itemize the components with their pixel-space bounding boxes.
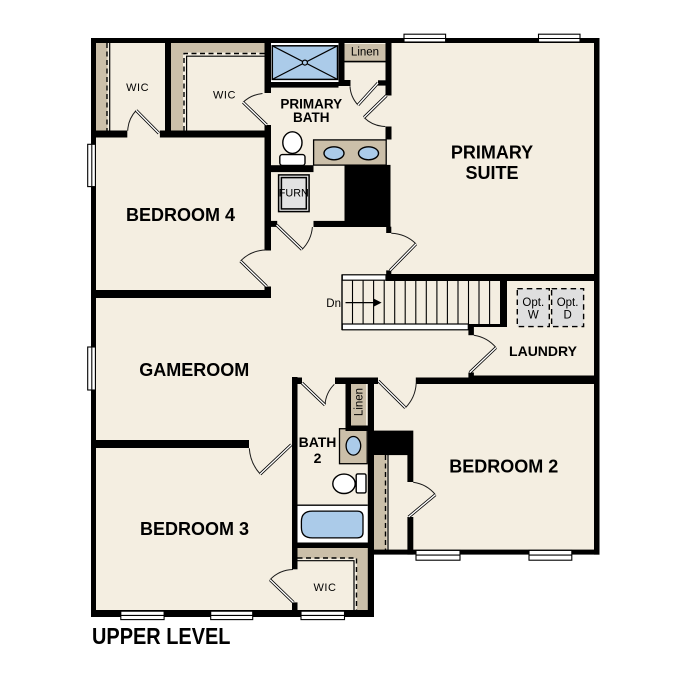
- svg-text:PRIMARY: PRIMARY: [280, 96, 342, 111]
- svg-text:GAMEROOM: GAMEROOM: [139, 360, 249, 380]
- svg-text:W: W: [528, 310, 539, 322]
- svg-text:UPPER LEVEL: UPPER LEVEL: [92, 623, 231, 649]
- svg-text:PRIMARY: PRIMARY: [451, 142, 533, 162]
- svg-text:Opt.: Opt.: [522, 297, 544, 309]
- svg-text:BEDROOM 3: BEDROOM 3: [140, 519, 249, 539]
- svg-text:Linen: Linen: [351, 47, 379, 59]
- svg-text:BEDROOM 2: BEDROOM 2: [449, 457, 558, 477]
- svg-text:WIC: WIC: [213, 89, 236, 101]
- svg-text:2: 2: [314, 450, 322, 466]
- svg-text:FURN: FURN: [279, 187, 309, 199]
- svg-text:BATH: BATH: [299, 434, 337, 450]
- svg-text:SUITE: SUITE: [465, 163, 518, 183]
- svg-text:BEDROOM 4: BEDROOM 4: [126, 205, 235, 225]
- svg-text:WIC: WIC: [314, 582, 337, 594]
- svg-text:Dn: Dn: [326, 298, 341, 310]
- svg-text:WIC: WIC: [126, 82, 149, 94]
- svg-text:Opt.: Opt.: [557, 297, 579, 309]
- svg-text:D: D: [563, 310, 571, 322]
- svg-text:Linen: Linen: [354, 388, 366, 416]
- svg-text:BATH: BATH: [293, 110, 330, 125]
- svg-text:LAUNDRY: LAUNDRY: [509, 343, 578, 359]
